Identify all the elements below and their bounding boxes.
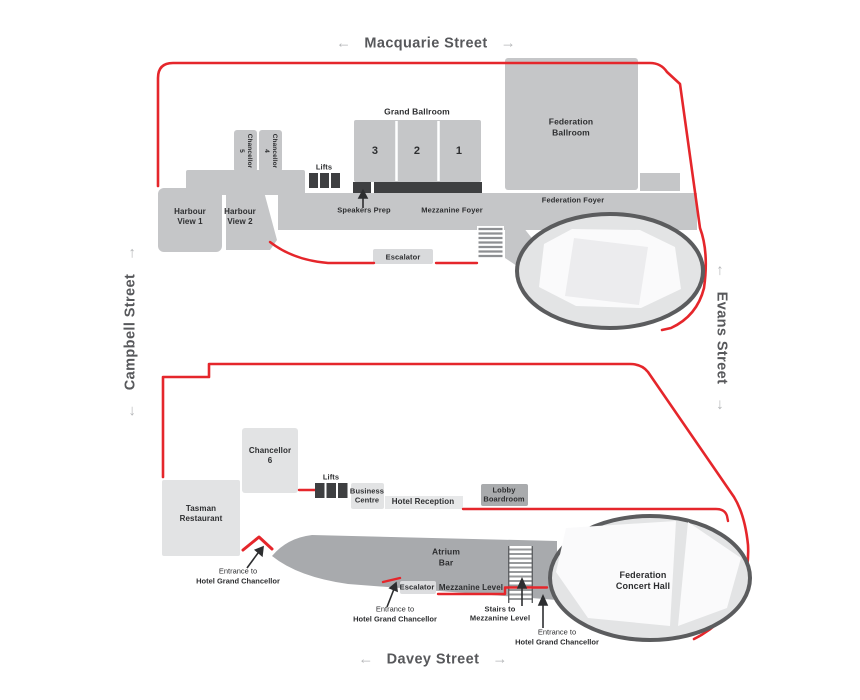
speakers-prep-label: Speakers Prep: [337, 205, 390, 214]
entrance-line2: Hotel Grand Chancellor: [515, 637, 599, 647]
grand-ballroom-title: Grand Ballroom: [384, 107, 450, 118]
federation-foyer-label: Federation Foyer: [542, 195, 604, 204]
atrium-bar-label: Atrium Bar: [432, 546, 460, 567]
hotel-floor-plan-map: ← Macquarie Street → ← Campbell Street →…: [0, 0, 860, 700]
grand-ballroom-room-2: 2: [414, 145, 420, 159]
lifts-lower-label: Lifts: [323, 472, 339, 481]
lift-upper-1-icon: [309, 173, 318, 188]
stairs-upper-icon: [477, 226, 504, 258]
mezzanine-foyer-label: Mezzanine Foyer: [421, 205, 483, 214]
lift-lower-1-icon: [315, 483, 325, 498]
chancellor-4-label: Chancellor 4: [262, 134, 278, 169]
street-label-campbell: ← Campbell Street →: [122, 245, 139, 418]
arrow-left-icon: ←: [358, 651, 373, 668]
arrow-left-icon: ←: [714, 263, 731, 278]
arrow-right-icon: →: [501, 35, 516, 52]
mezzanine-level-label: Mezzanine Level: [439, 583, 503, 593]
hotel-reception-label: Hotel Reception: [392, 497, 454, 507]
street-name: Campbell Street: [122, 274, 138, 390]
entrance-label-3: Entrance to Hotel Grand Chancellor: [515, 627, 599, 647]
arrow-left-icon: ←: [122, 403, 139, 418]
lifts-upper-label: Lifts: [316, 162, 332, 171]
federation-ballroom-label: Federation Ballroom: [549, 116, 593, 137]
street-label-davey: ← Davey Street →: [358, 651, 507, 668]
business-centre-label: Business Centre: [350, 487, 384, 506]
entrance-chevron-red: [243, 537, 272, 550]
street-label-macquarie: ← Macquarie Street →: [336, 35, 516, 52]
tasman-restaurant-label: Tasman Restaurant: [180, 504, 223, 524]
street-name: Macquarie Street: [364, 35, 487, 51]
entrance-line1: Entrance to: [515, 627, 599, 637]
entrance-line1: Entrance to: [196, 566, 280, 576]
street-name: Evans Street: [714, 292, 730, 385]
escalator-upper-label: Escalator: [386, 252, 421, 261]
federation-foyer-notch-shape: [640, 173, 680, 191]
street-label-evans: ← Evans Street →: [714, 263, 731, 412]
entrance-line2: Hotel Grand Chancellor: [196, 576, 280, 586]
arrow-right-icon: →: [714, 397, 731, 412]
grand-ballroom-room-1: 1: [456, 145, 462, 159]
lift-lower-2-icon: [327, 483, 337, 498]
speakers-prep-bar: [374, 182, 482, 193]
entrance-line2: Hotel Grand Chancellor: [353, 614, 437, 624]
grand-ballroom-room-3: 3: [372, 145, 378, 159]
stairs-lower-icon: [508, 546, 533, 603]
chancellor-5-label: Chancellor 5: [237, 134, 253, 169]
escalator-lower-label: Escalator: [400, 582, 435, 591]
lobby-boardroom-label: Lobby Boardroom: [483, 486, 524, 505]
chancellor-6-label: Chancellor 6: [249, 446, 291, 466]
federation-concert-hall-label: Federation Concert Hall: [616, 570, 670, 593]
entrance-1-arrow-icon: [247, 547, 263, 568]
upper-hall-oval: [517, 214, 703, 328]
lift-lower-3-icon: [338, 483, 348, 498]
arrow-right-icon: →: [492, 651, 507, 668]
entrance-label-2: Entrance to Hotel Grand Chancellor: [353, 604, 437, 624]
entrance-line1: Entrance to: [353, 604, 437, 614]
lift-upper-3-icon: [331, 173, 340, 188]
stairs-to-mezzanine-label: Stairs to Mezzanine Level: [470, 605, 530, 624]
lift-upper-2-icon: [320, 173, 329, 188]
entrance-3-arrow-icon: [539, 596, 547, 628]
arrow-left-icon: ←: [336, 35, 351, 52]
harbour-view-2-label: Harbour View 2: [224, 207, 256, 227]
street-name: Davey Street: [387, 651, 480, 667]
entrance-label-1: Entrance to Hotel Grand Chancellor: [196, 566, 280, 586]
harbour-view-1-label: Harbour View 1: [174, 207, 206, 227]
arrow-right-icon: →: [122, 245, 139, 260]
